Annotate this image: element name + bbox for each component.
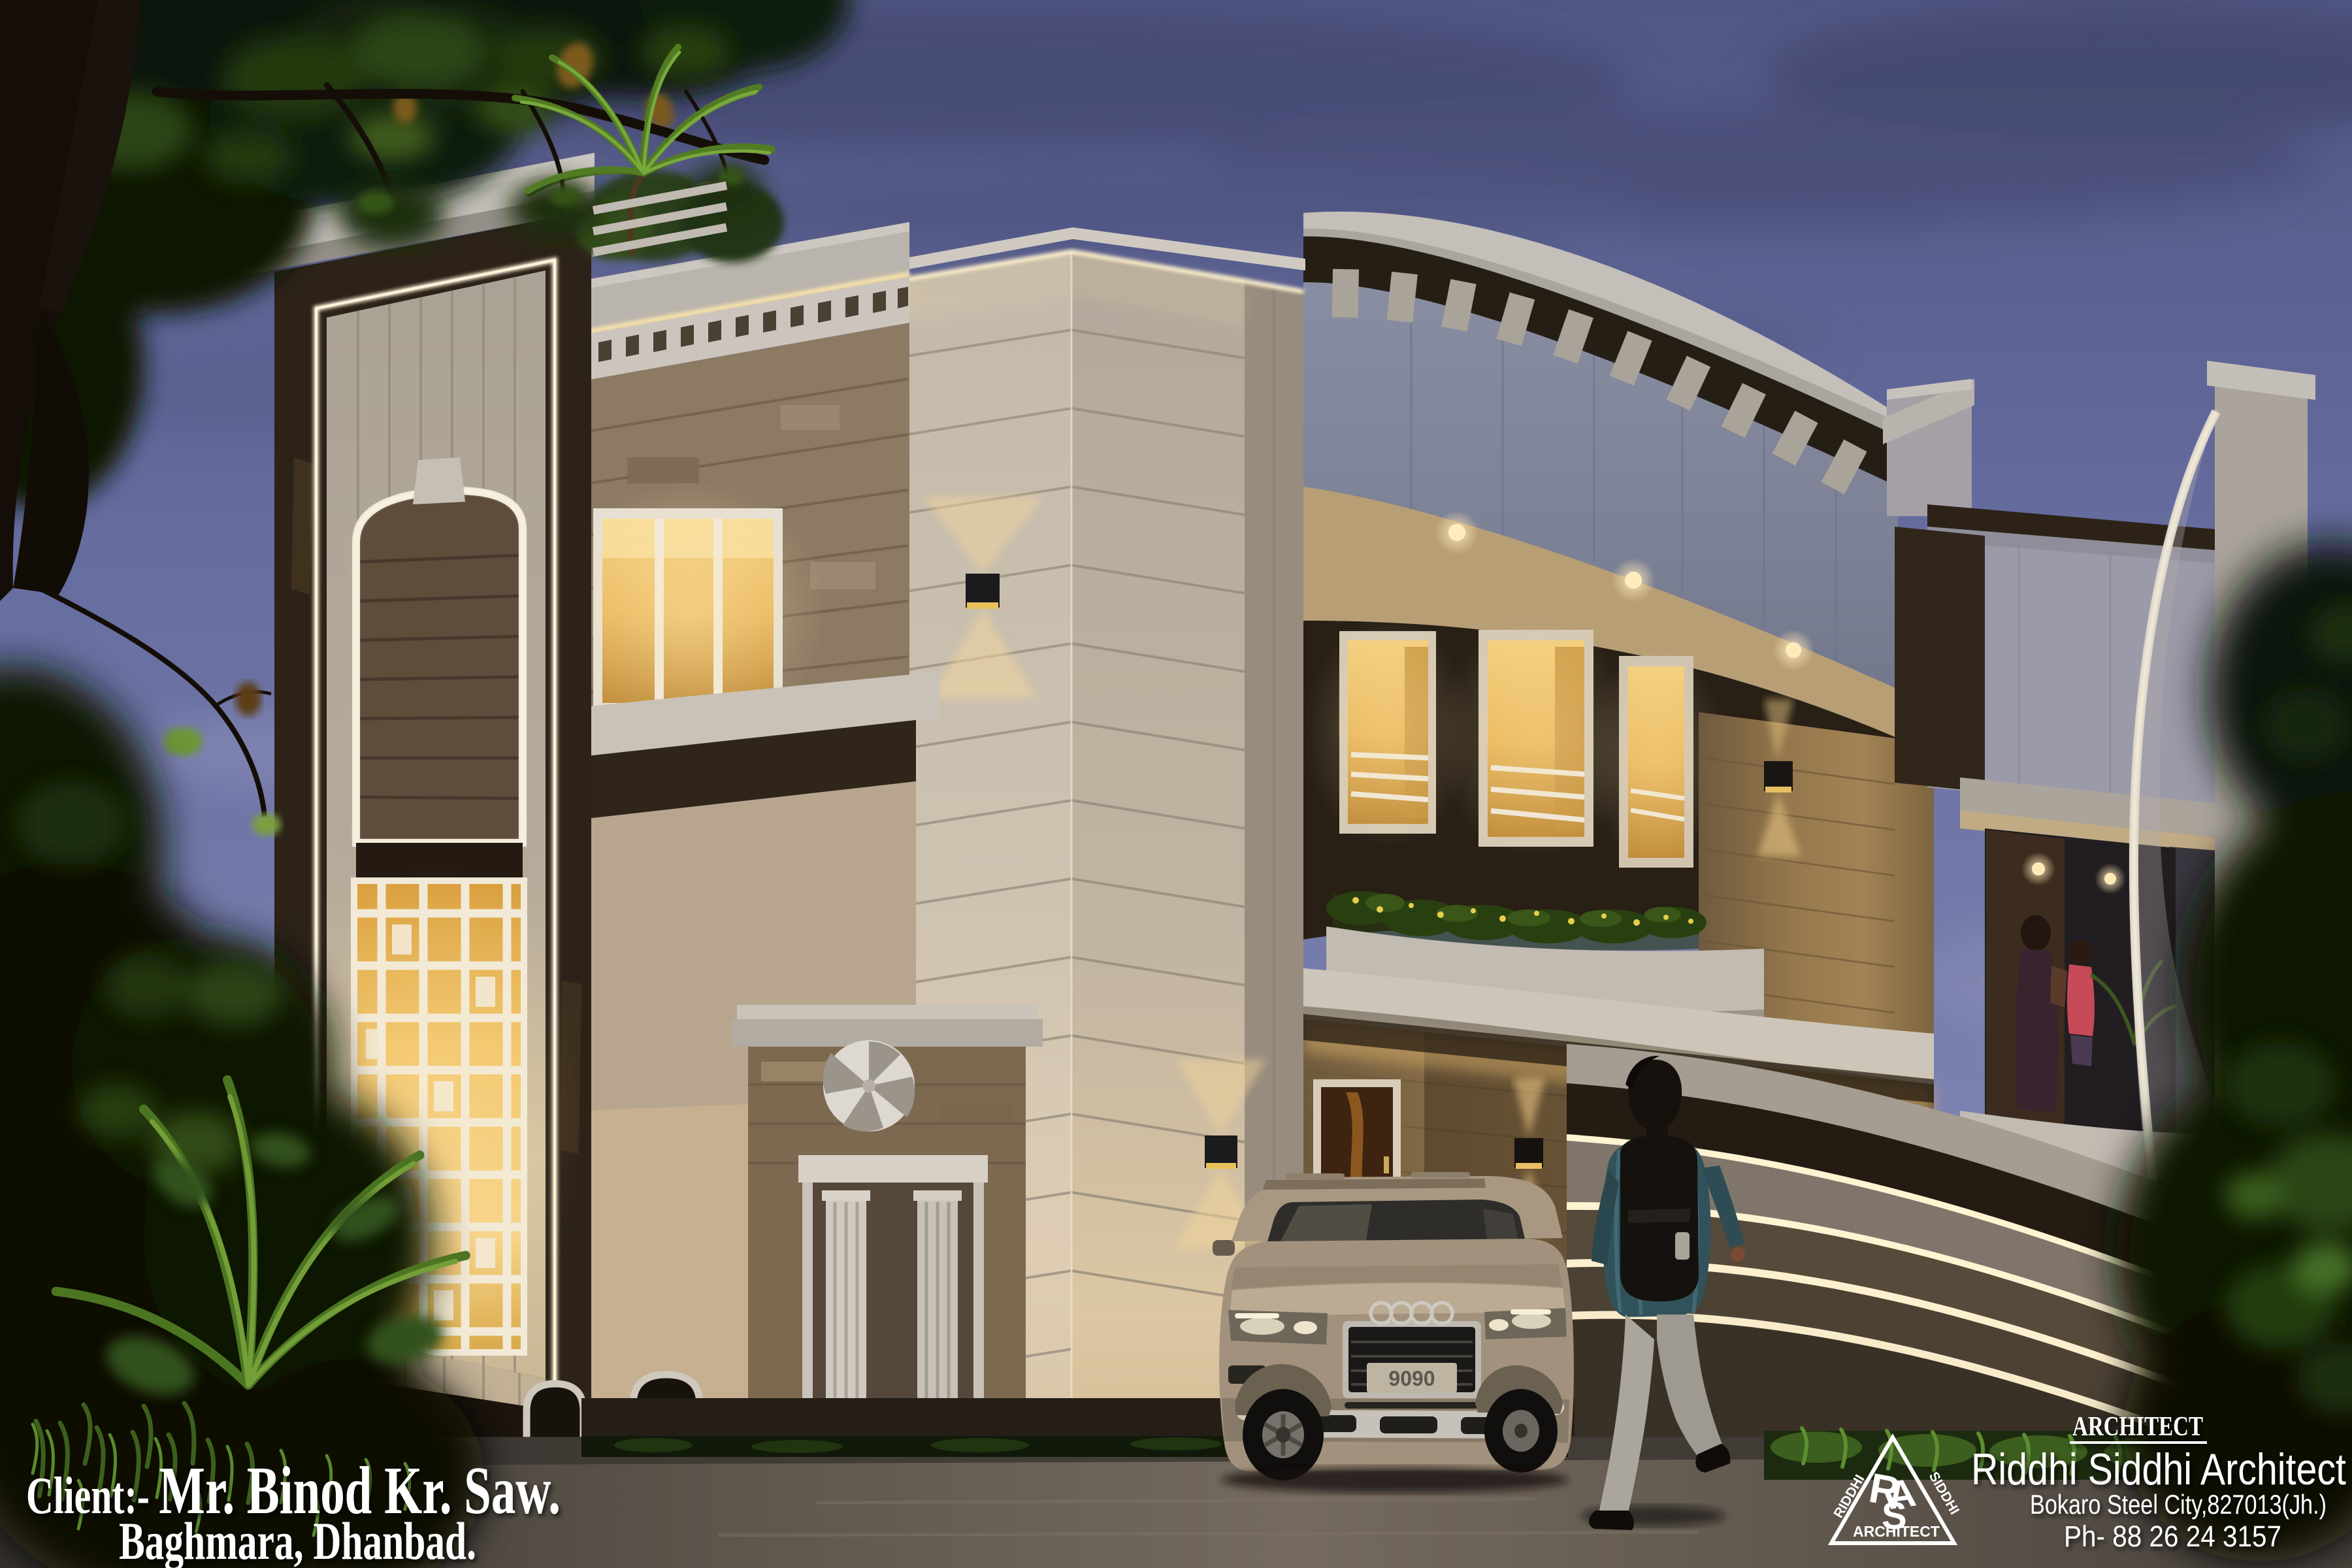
svg-text:Ph- 88 26 24 3157: Ph- 88 26 24 3157 [2064, 1520, 2281, 1553]
svg-text:9090: 9090 [1388, 1367, 1435, 1390]
svg-text:A: A [1884, 1470, 1918, 1517]
svg-text:ARCHITECT: ARCHITECT [2072, 1412, 2203, 1442]
svg-text:Riddhi Siddhi Architect: Riddhi Siddhi Architect [1971, 1445, 2346, 1494]
svg-text:ARCHITECT: ARCHITECT [1853, 1523, 1940, 1540]
svg-text:Bokaro Steel City,827013(Jh.): Bokaro Steel City,827013(Jh.) [2030, 1489, 2327, 1520]
svg-text:Baghmara, Dhanbad.: Baghmara, Dhanbad. [119, 1511, 476, 1568]
